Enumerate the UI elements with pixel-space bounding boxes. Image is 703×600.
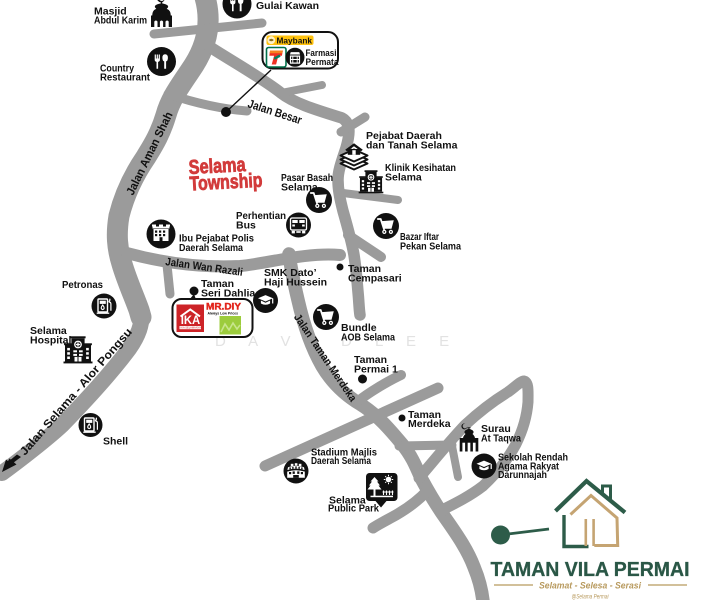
- svg-text:Pekan Selama: Pekan Selama: [400, 241, 461, 253]
- svg-text:Selamat - Selesa - Serasi: Selamat - Selesa - Serasi: [539, 581, 641, 592]
- svg-text:D A V I D L E E: D A V I D L E E: [215, 333, 459, 350]
- svg-text:Darunnajah: Darunnajah: [498, 469, 547, 481]
- svg-text:Public Park: Public Park: [328, 503, 379, 515]
- svg-text:@Selama Permai: @Selama Permai: [572, 595, 610, 600]
- svg-text:Permai 1: Permai 1: [354, 364, 398, 376]
- svg-text:Merdeka: Merdeka: [408, 418, 451, 430]
- svg-text:Shell: Shell: [103, 436, 128, 448]
- svg-text:TAMAN VILA PERMAI: TAMAN VILA PERMAI: [491, 559, 690, 581]
- svg-text:Daerah Selama: Daerah Selama: [311, 455, 371, 467]
- svg-text:Seri Dahlia: Seri Dahlia: [201, 288, 255, 300]
- svg-text:Abdul Karim: Abdul Karim: [94, 15, 147, 27]
- svg-text:Gulai Kawan: Gulai Kawan: [256, 0, 319, 12]
- svg-text:Permata: Permata: [306, 57, 339, 67]
- svg-text:MR.DIY: MR.DIY: [206, 302, 241, 312]
- svg-text:Township: Township: [189, 170, 263, 196]
- svg-text:Bus: Bus: [236, 220, 256, 232]
- svg-text:Always Low Prices: Always Low Prices: [208, 312, 239, 316]
- svg-text:Selama: Selama: [385, 172, 422, 184]
- svg-text:Petronas: Petronas: [62, 279, 103, 291]
- svg-text:At Taqwa: At Taqwa: [481, 433, 521, 445]
- svg-text:IKA SELAMANYA: IKA SELAMANYA: [181, 326, 202, 330]
- svg-text:dan Tanah Selama: dan Tanah Selama: [366, 140, 458, 152]
- svg-text:Restaurant: Restaurant: [100, 72, 150, 84]
- svg-text:IKA: IKA: [181, 313, 201, 327]
- svg-text:Cempasari: Cempasari: [348, 273, 402, 285]
- svg-text:Haji Hussein: Haji Hussein: [264, 277, 327, 289]
- svg-text:AOB Selama: AOB Selama: [341, 332, 395, 344]
- svg-text:Daerah Selama: Daerah Selama: [179, 242, 243, 254]
- svg-text:Maybank: Maybank: [277, 35, 313, 45]
